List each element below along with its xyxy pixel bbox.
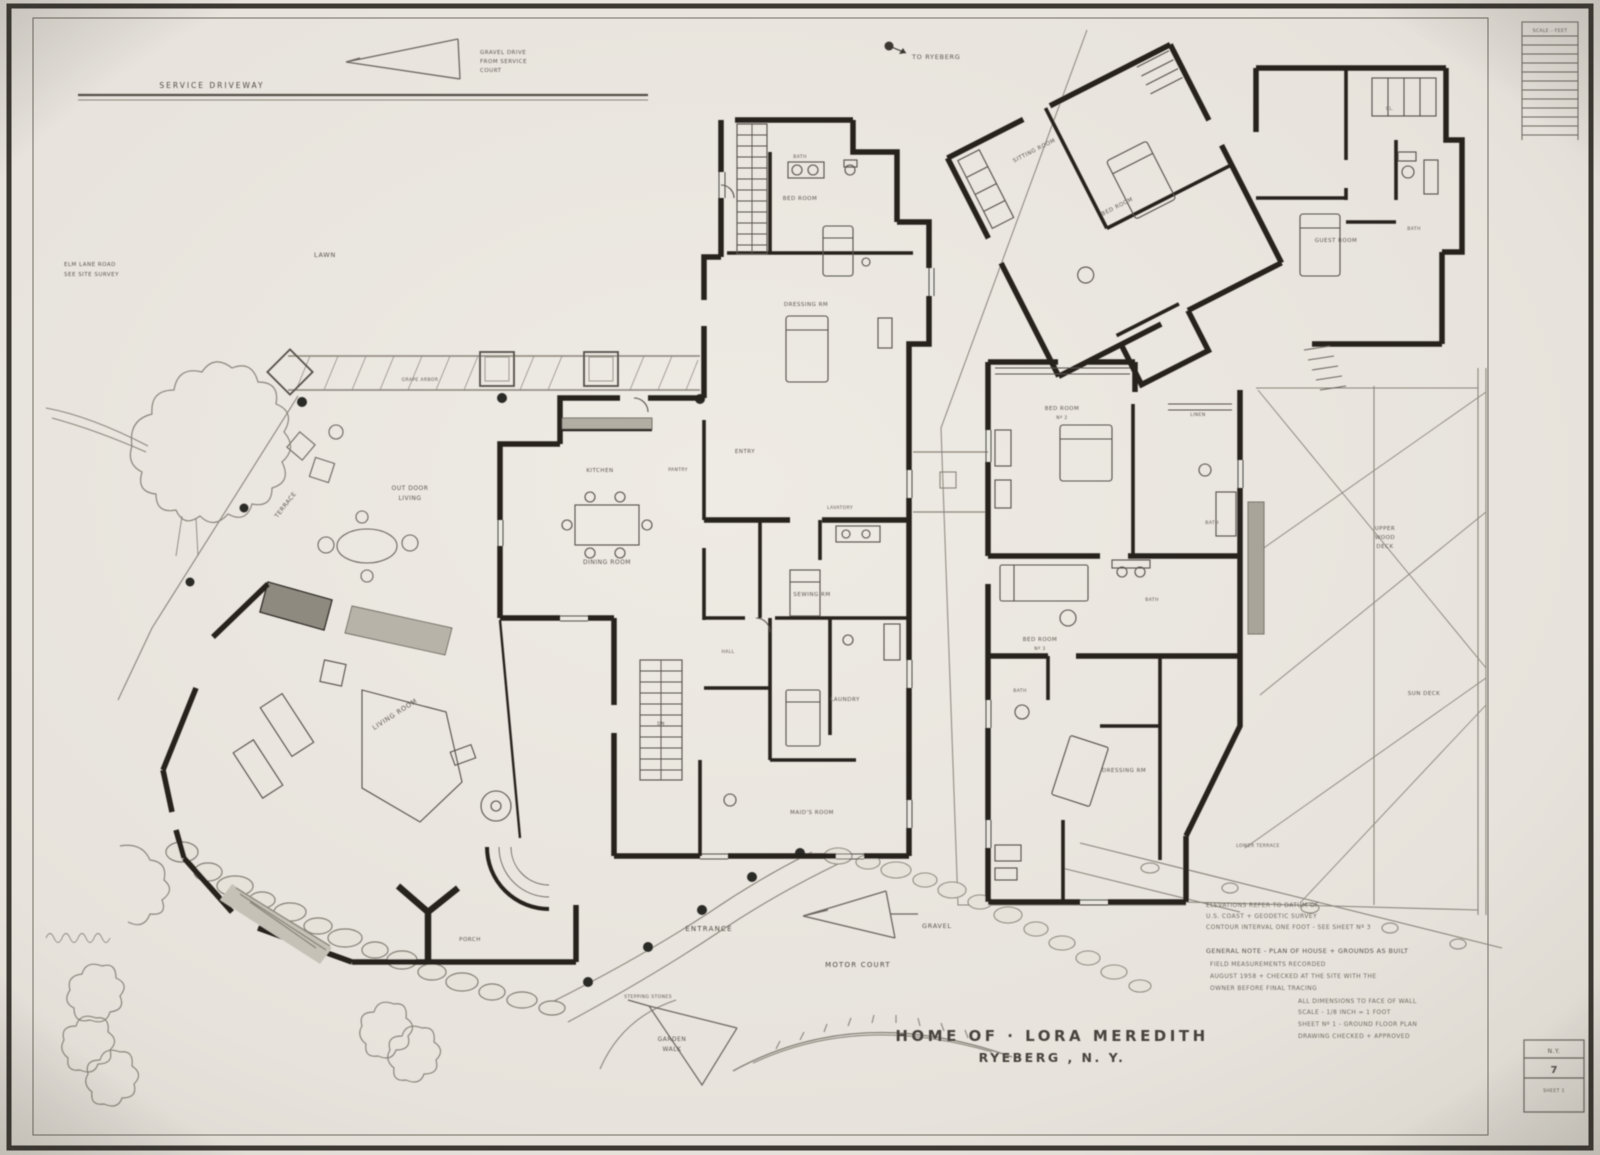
floor-plan-sheet: SERVICE DRIVEWAY GRAVEL DRIVE FROM SERVI… — [0, 0, 1600, 1155]
floor-plan-drawing: SERVICE DRIVEWAY GRAVEL DRIVE FROM SERVI… — [0, 0, 1600, 1155]
vignette-overlay — [0, 0, 1600, 1155]
